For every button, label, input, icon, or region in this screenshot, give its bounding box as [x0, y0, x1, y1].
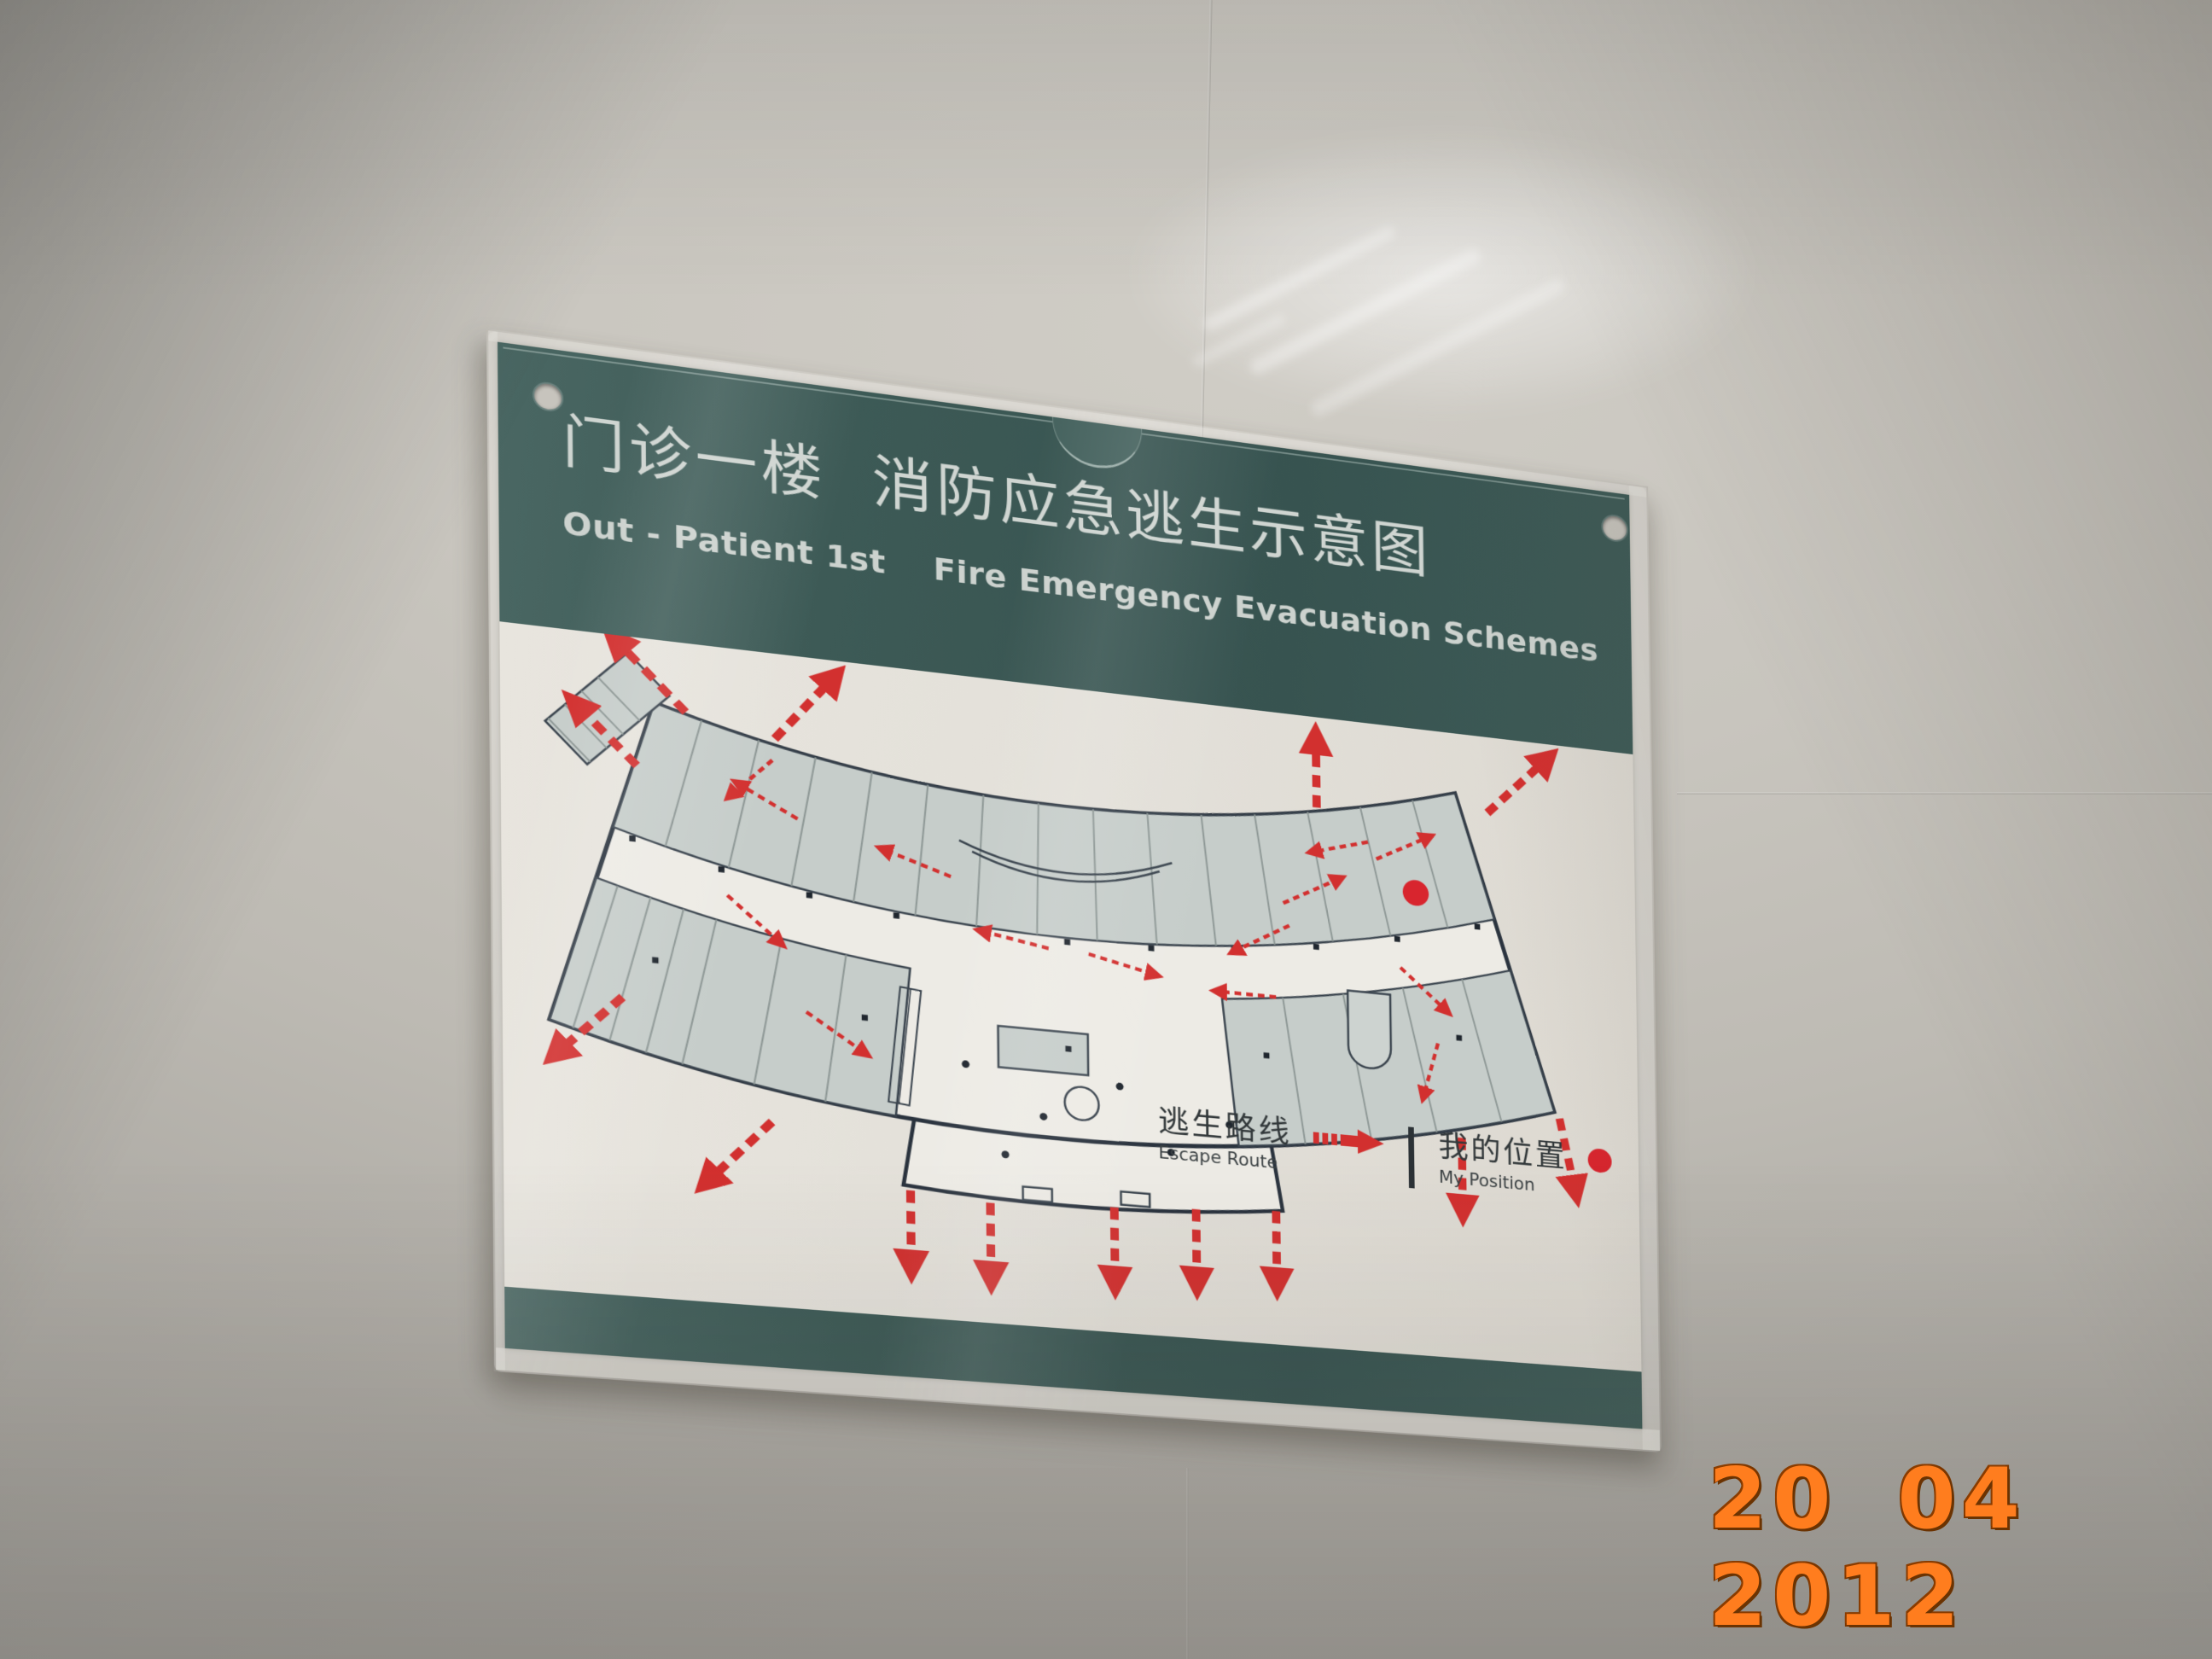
lobby-desk	[998, 1026, 1088, 1075]
printed-sign-sheet: 门诊一楼 消防应急逃生示意图 Out - Patient 1st Fire Em…	[498, 342, 1642, 1429]
camera-date-stamp: 20 04 2012	[1708, 1451, 2212, 1645]
evacuation-sign: 门诊一楼 消防应急逃生示意图 Out - Patient 1st Fire Em…	[486, 329, 1662, 1452]
stairwell	[1348, 991, 1391, 1071]
legend-escape-route: 逃生路线 Escape Route	[1158, 1104, 1292, 1173]
escape-route-arrow-icon	[1313, 1125, 1384, 1157]
photo-of-evacuation-sign: 门诊一楼 消防应急逃生示意图 Out - Patient 1st Fire Em…	[0, 0, 2212, 1659]
legend-divider	[1408, 1126, 1415, 1188]
acrylic-panel: 门诊一楼 消防应急逃生示意图 Out - Patient 1st Fire Em…	[486, 329, 1662, 1452]
wall-tile-seam-vertical-lower	[1186, 1468, 1189, 1659]
my-position-dot-icon	[1587, 1148, 1611, 1173]
legend-my-position: 我的位置 My Position	[1438, 1130, 1568, 1198]
wall-tile-seam-horizontal	[1677, 792, 2212, 795]
